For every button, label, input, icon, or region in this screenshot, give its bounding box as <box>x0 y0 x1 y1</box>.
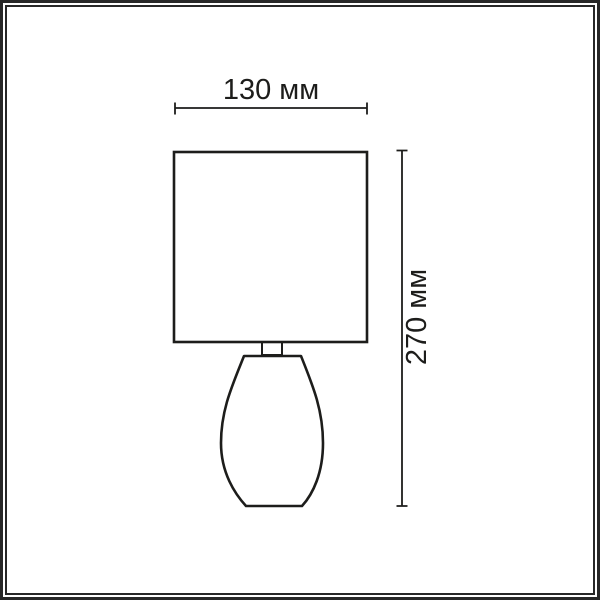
height-dimension-label: 270 мм <box>402 217 432 417</box>
lamp-neck <box>262 342 282 355</box>
diagram-canvas: 130 мм 270 мм <box>0 0 600 600</box>
lamp-base <box>221 356 323 506</box>
lamp-shade <box>174 152 367 342</box>
width-dimension-label: 130 мм <box>171 75 371 105</box>
